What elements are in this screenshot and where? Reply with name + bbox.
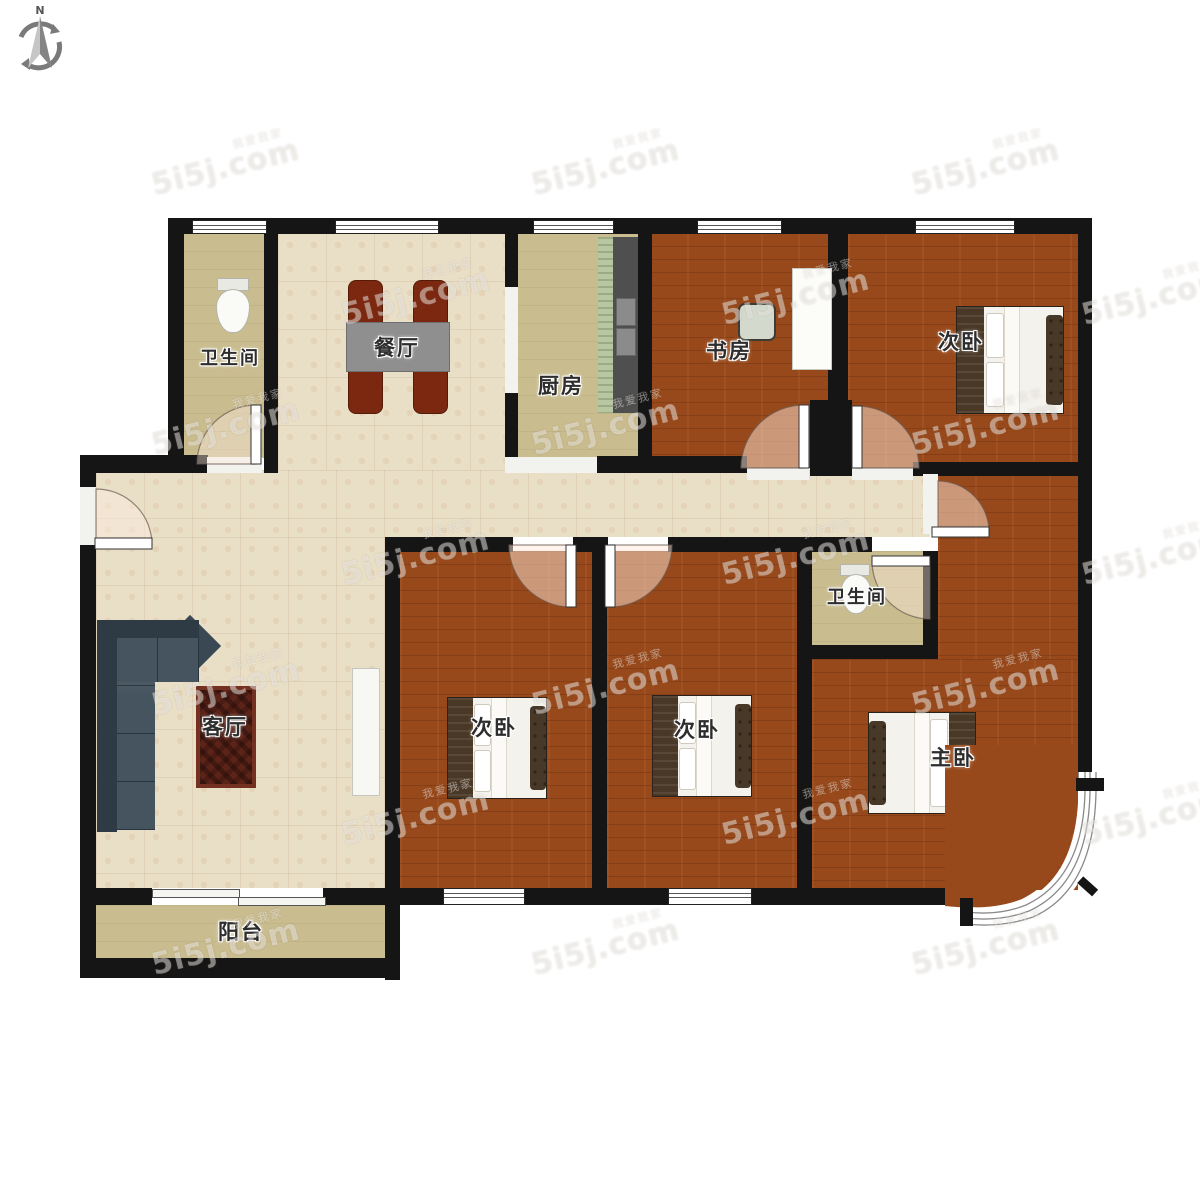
- floorplan: 卫生间 餐厅 厨房 书房 次卧 客厅 次卧 次卧 卫生间 主卧 阳台 N 5i5…: [0, 0, 1200, 1200]
- doors-overlay: [0, 0, 1200, 1200]
- bedroom-top-right-door: [852, 406, 919, 468]
- study-door: [741, 405, 809, 468]
- bedroom-mid-door: [509, 545, 576, 607]
- room-label-living: 客厅: [202, 711, 248, 741]
- entry-door: [95, 489, 152, 549]
- room-label-bathroom-top: 卫生间: [200, 344, 260, 370]
- room-label-bedroom-top-right: 次卧: [938, 326, 984, 356]
- room-label-bedroom-right: 次卧: [674, 714, 720, 744]
- room-label-bathroom-inner: 卫生间: [827, 583, 887, 609]
- room-label-master: 主卧: [930, 742, 976, 772]
- bathroom-top-door: [197, 405, 261, 464]
- compass-n-label: N: [35, 4, 44, 17]
- master-door: [932, 481, 989, 537]
- room-label-dining: 餐厅: [374, 332, 420, 362]
- bay-window: [945, 745, 1104, 926]
- compass-north-icon: N: [8, 2, 72, 86]
- room-label-study: 书房: [706, 335, 752, 365]
- room-label-kitchen: 厨房: [538, 370, 584, 400]
- room-label-balcony: 阳台: [218, 916, 264, 946]
- bedroom-right-door: [605, 545, 672, 607]
- room-label-bedroom-mid: 次卧: [471, 712, 517, 742]
